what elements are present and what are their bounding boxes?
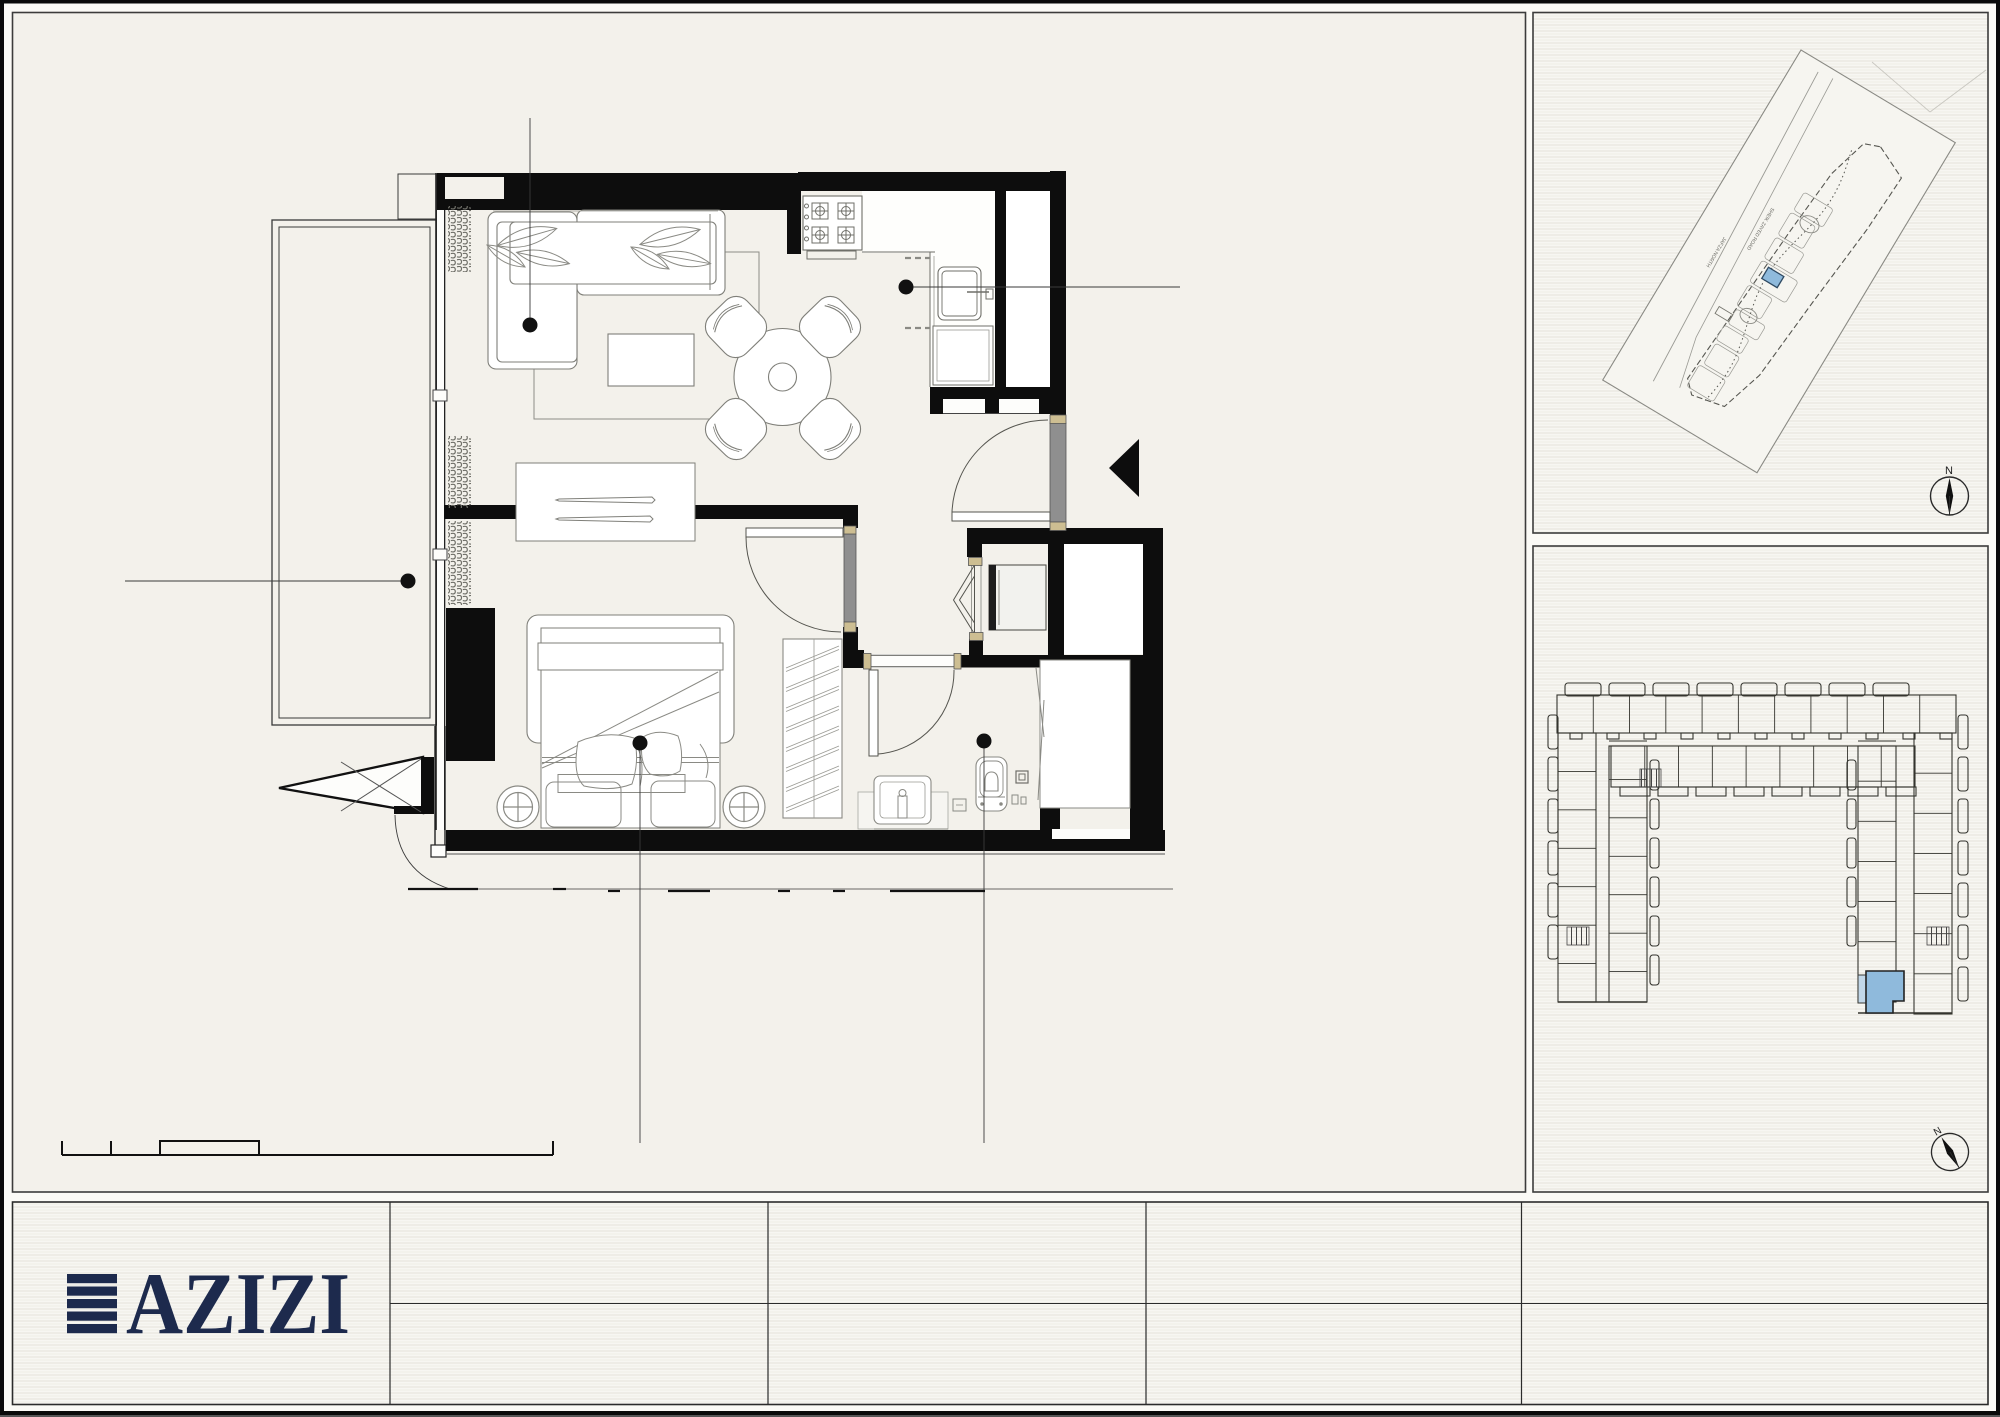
svg-text:AZIZI: AZIZI: [126, 1256, 350, 1353]
svg-text:N: N: [1945, 465, 1953, 477]
